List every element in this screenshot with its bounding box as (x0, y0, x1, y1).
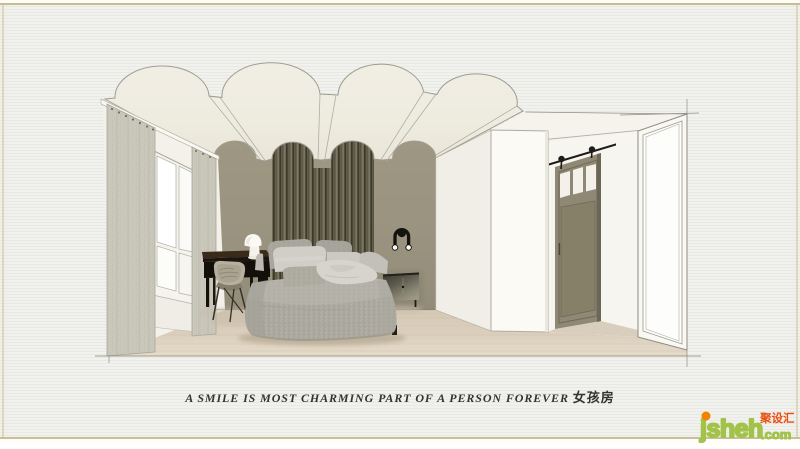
svg-text:聚设汇: 聚设汇 (759, 411, 795, 425)
svg-text:.com: .com (761, 427, 791, 442)
